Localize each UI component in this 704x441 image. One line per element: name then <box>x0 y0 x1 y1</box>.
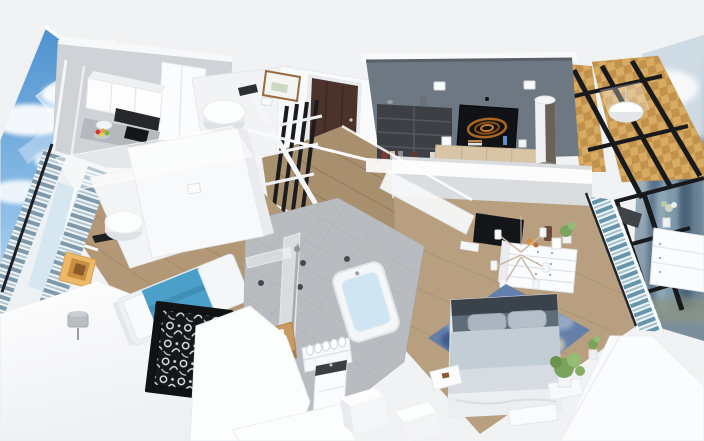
double-bed-gray[interactable] <box>447 294 563 418</box>
door-knob <box>349 118 352 121</box>
ceiling-cylinder-lamp[interactable] <box>105 211 143 241</box>
cylinder-floor-lamp[interactable] <box>535 96 556 170</box>
ceiling-spotlight <box>524 81 535 89</box>
camera-dot <box>485 97 489 101</box>
pillow <box>468 313 507 332</box>
basin-faucet <box>330 364 333 367</box>
wall-top-shadow <box>366 59 572 61</box>
floorplan-3d-viewport[interactable] <box>0 0 704 441</box>
wall-picture[interactable] <box>263 71 300 101</box>
ceiling-spotlight <box>434 82 445 90</box>
sink[interactable] <box>96 121 112 130</box>
ceiling-vent <box>261 97 272 105</box>
wall-vent <box>188 183 201 194</box>
floorplan-stage <box>0 0 704 441</box>
pillow <box>508 310 547 329</box>
